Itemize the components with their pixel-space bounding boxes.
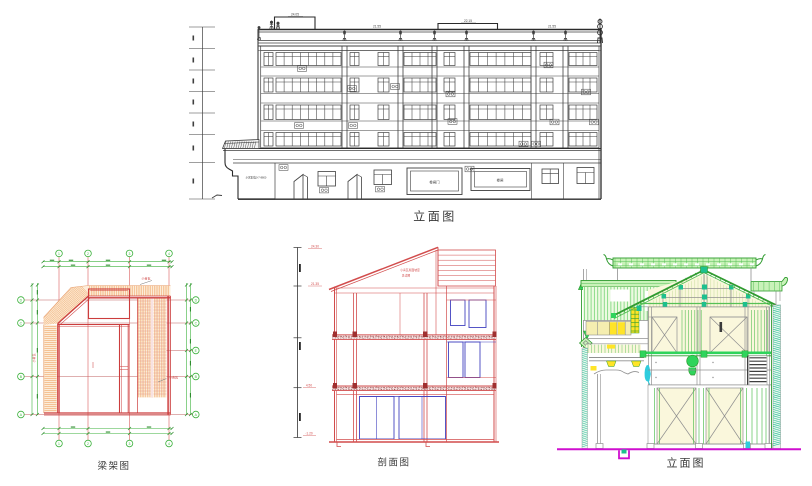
svg-text:立面图: 立面图 xyxy=(413,209,457,224)
svg-text:卷闸门: 卷闸门 xyxy=(429,180,440,185)
svg-text:1: 1 xyxy=(58,442,60,446)
svg-text:小青瓦: 小青瓦 xyxy=(141,276,150,281)
svg-text:24.05: 24.05 xyxy=(291,13,299,17)
svg-text:卷闸: 卷闸 xyxy=(497,178,504,183)
svg-text:2: 2 xyxy=(87,442,89,446)
svg-text:剖面图: 剖面图 xyxy=(377,457,410,469)
svg-text:-1.20: -1.20 xyxy=(305,431,312,435)
svg-text:4: 4 xyxy=(168,442,170,446)
svg-text:1: 1 xyxy=(58,252,60,256)
svg-text:22.15: 22.15 xyxy=(464,19,472,23)
svg-text:24.30: 24.30 xyxy=(311,245,319,249)
svg-text:见详图: 见详图 xyxy=(402,274,411,278)
svg-text:4.50: 4.50 xyxy=(306,384,312,388)
svg-text:21.55: 21.55 xyxy=(373,25,381,29)
svg-text:3: 3 xyxy=(129,252,131,256)
svg-text:21.35: 21.35 xyxy=(311,282,319,286)
svg-text:小青瓦: 小青瓦 xyxy=(169,375,178,380)
svg-text:2: 2 xyxy=(87,252,89,256)
svg-text:4: 4 xyxy=(168,252,170,256)
svg-text:21.55: 21.55 xyxy=(548,25,556,29)
svg-text:小青瓦屋面坡度: 小青瓦屋面坡度 xyxy=(400,268,420,272)
svg-text:小青瓦: 小青瓦 xyxy=(31,353,36,362)
svg-text:梁架图: 梁架图 xyxy=(97,460,130,472)
svg-text:小区配电0-7-8800: 小区配电0-7-8800 xyxy=(246,176,267,180)
svg-text:立面图: 立面图 xyxy=(667,456,706,470)
svg-text:3: 3 xyxy=(129,442,131,446)
